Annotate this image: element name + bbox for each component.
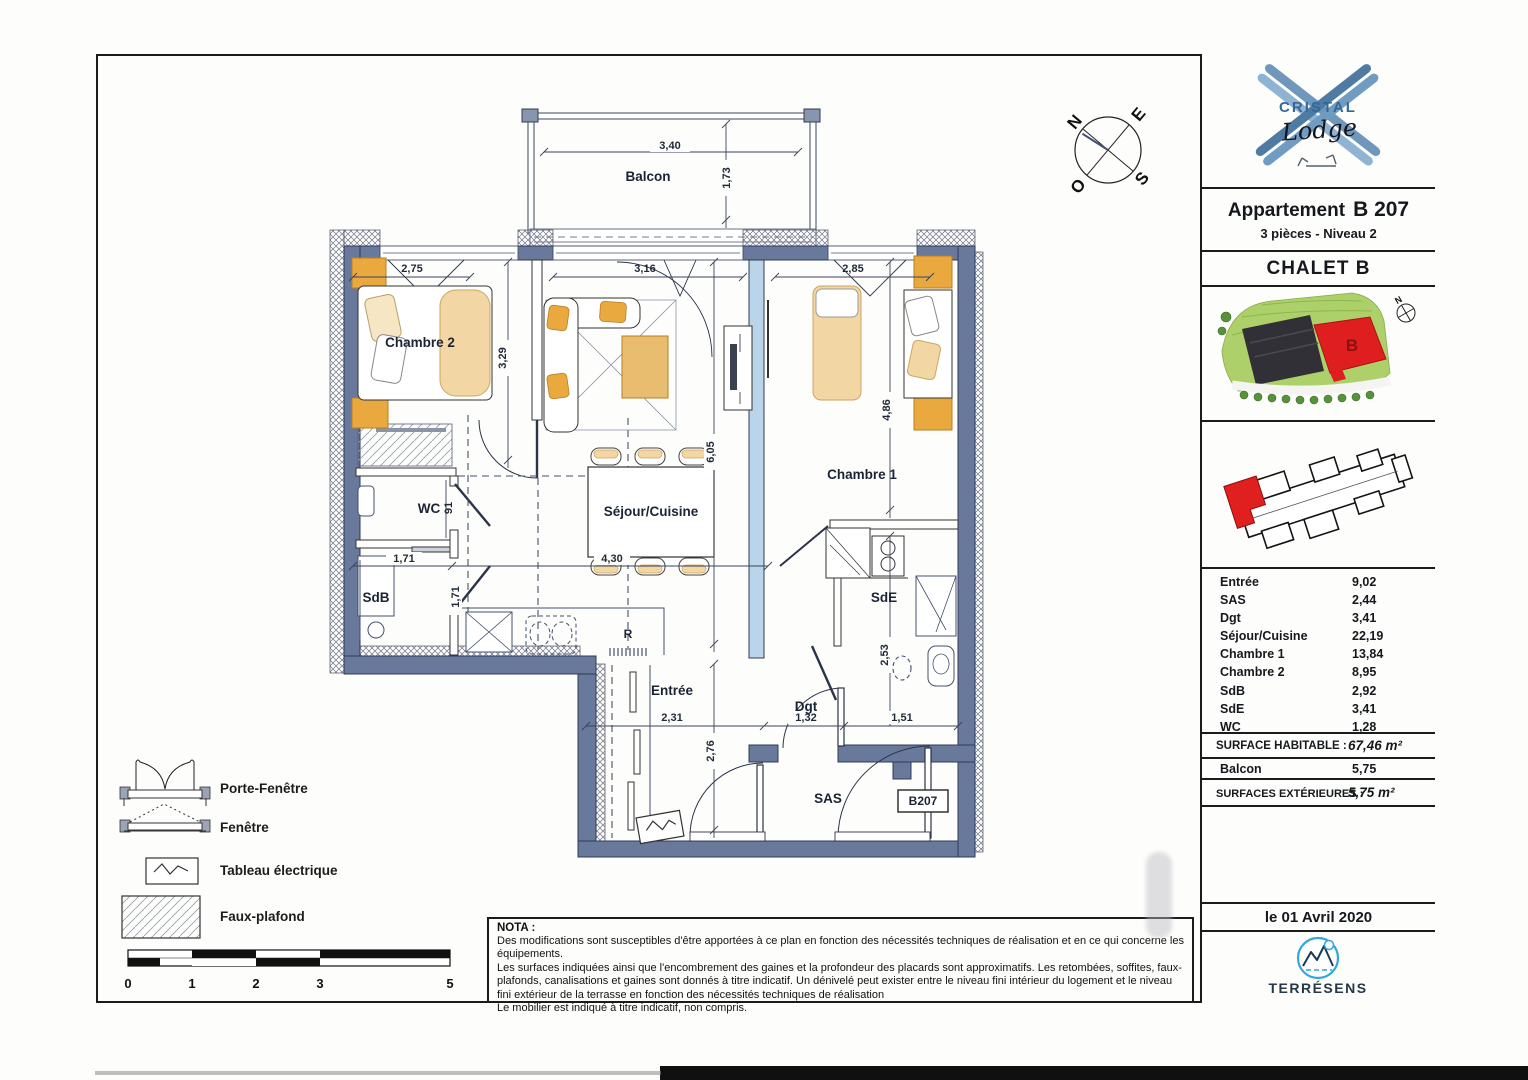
terresens-name: TERRÉSENS [1268, 980, 1367, 996]
table-row: Chambre 113,84 [1202, 646, 1435, 664]
row-value: 8,95 [1352, 665, 1376, 679]
empty-box [1202, 807, 1435, 904]
row-room: Séjour/Cuisine [1220, 629, 1308, 643]
surface-habitable-value: 67,46 m² [1348, 738, 1402, 753]
table-row: Dgt3,41 [1202, 610, 1435, 628]
row-value: 13,84 [1352, 647, 1383, 661]
surfaces-ext-label: SURFACES EXTÉRIEURES : [1216, 788, 1363, 800]
row-value: 3,41 [1352, 702, 1376, 716]
surface-habitable: SURFACE HABITABLE : 67,46 m² [1202, 734, 1435, 759]
row-value: 5,75 [1352, 762, 1376, 776]
surface-habitable-label: SURFACE HABITABLE : [1216, 740, 1347, 752]
row-value: 22,19 [1352, 629, 1383, 643]
floor-key-plan [1202, 422, 1435, 569]
row-value: 9,02 [1352, 575, 1376, 589]
table-row: SdE3,41 [1202, 701, 1435, 719]
surfaces-exterieures: SURFACES EXTÉRIEURES : 5,75 m² [1202, 780, 1435, 807]
row-value: 1,28 [1352, 720, 1376, 734]
areas-table: Entrée9,02 SAS2,44 Dgt3,41 Séjour/Cuisin… [1202, 569, 1435, 734]
row-room: WC [1220, 720, 1241, 734]
row-value: 2,92 [1352, 684, 1376, 698]
cristal-lodge-logo: CRISTAL Lodge [1202, 54, 1435, 189]
site-plan-thumbnail: B N [1202, 287, 1435, 422]
row-value: 2,44 [1352, 593, 1376, 607]
apartment-subtitle: 3 pièces - Niveau 2 [1202, 226, 1435, 241]
apartment-header: AppartementB 207 3 pièces - Niveau 2 [1202, 189, 1435, 252]
building-b-label: B [1346, 336, 1358, 355]
terresens-logo: TERRÉSENS [1202, 932, 1435, 1005]
nota-line: Le mobilier est indiqué à titre indicati… [497, 1002, 1184, 1015]
crossed-skis-icon: CRISTAL Lodge [1202, 54, 1435, 187]
scan-artifact-line [95, 1071, 661, 1075]
nota-heading: NOTA : [497, 921, 1184, 935]
row-room: Balcon [1220, 762, 1262, 776]
table-row: SdB2,92 [1202, 683, 1435, 701]
scan-artifact-bar [660, 1066, 1528, 1080]
row-room: SdE [1220, 702, 1244, 716]
row-room: Dgt [1220, 611, 1241, 625]
table-row: Séjour/Cuisine22,19 [1202, 628, 1435, 646]
sun-icon [1325, 941, 1334, 950]
logo-script-text: Lodge [1280, 113, 1358, 146]
row-room: Chambre 1 [1220, 647, 1285, 661]
table-row: Chambre 28,95 [1202, 664, 1435, 682]
mini-compass: N [1388, 291, 1418, 325]
table-row: SAS2,44 [1202, 592, 1435, 610]
balcon-row: Balcon 5,75 [1202, 759, 1435, 780]
row-room: Chambre 2 [1220, 665, 1285, 679]
apartment-label: Appartement [1228, 200, 1345, 221]
row-room: Entrée [1220, 575, 1259, 589]
mini-compass-n: N [1393, 294, 1404, 306]
row-room: SdB [1220, 684, 1245, 698]
row-value: 3,41 [1352, 611, 1376, 625]
skier-marks [1298, 155, 1336, 166]
row-room: SAS [1220, 593, 1246, 607]
chalet-name: CHALET B [1202, 252, 1435, 287]
nota-line: Les surfaces indiquées ainsi que l'encom… [497, 962, 1184, 1002]
scan-artifact-smudge [1146, 852, 1172, 938]
table-row: Entrée9,02 [1202, 574, 1435, 592]
date-box: le 01 Avril 2020 [1202, 904, 1435, 932]
nota-block: NOTA : Des modifications sont susceptibl… [487, 917, 1194, 1003]
title-block: CRISTAL Lodge AppartementB 207 3 pièces … [1200, 54, 1435, 1003]
nota-line: Des modifications sont susceptibles d'êt… [497, 935, 1184, 962]
surfaces-ext-value: 5,75 m² [1348, 785, 1395, 800]
apartment-number: B 207 [1353, 198, 1409, 221]
plan-sheet: 3,40 1,73 2,75 3,16 2,85 3,29 6,05 4,86 … [0, 0, 1528, 1080]
